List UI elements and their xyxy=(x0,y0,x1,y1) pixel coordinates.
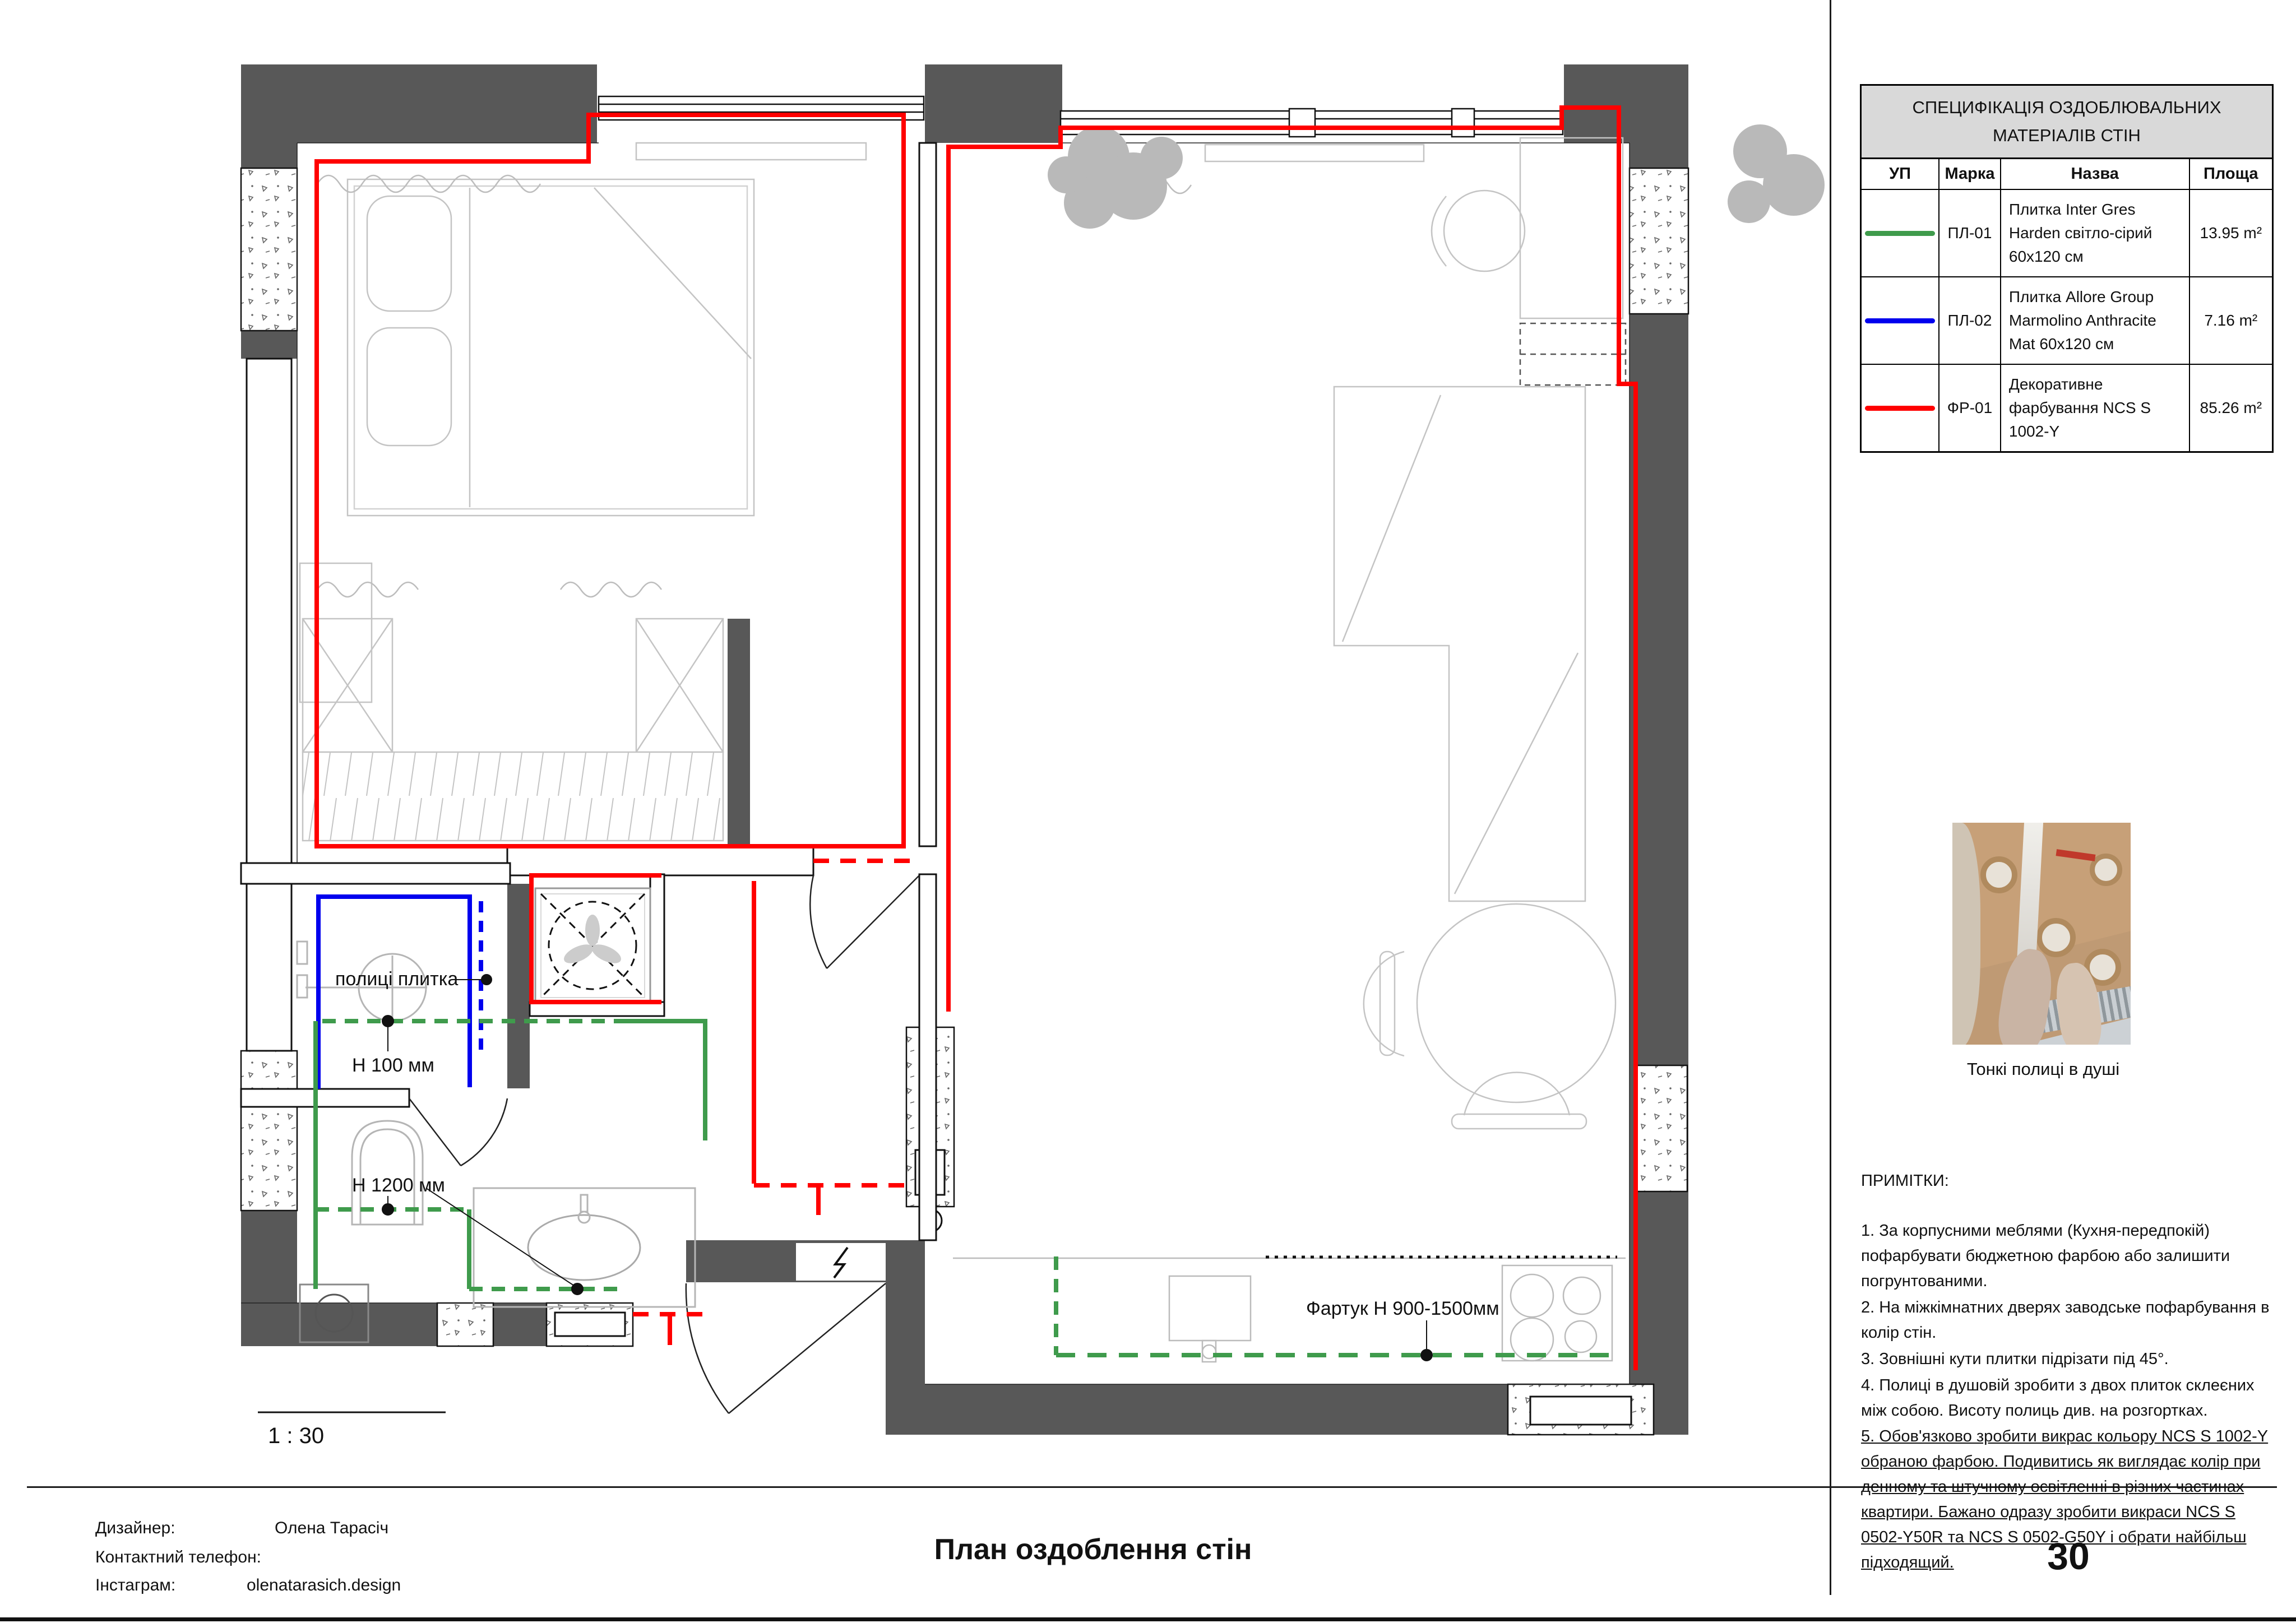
label-apron: Фартук Н 900-1500мм xyxy=(1306,1298,1499,1320)
shower-tray xyxy=(535,888,650,1003)
name-cell: Декоративне фарбування NCS S 1002-Y xyxy=(2001,365,2190,451)
bedroom-furniture xyxy=(300,143,866,841)
col-mark: Марка xyxy=(1939,159,2001,189)
panel-divider xyxy=(1830,0,1831,1595)
area-cell: 13.95 m² xyxy=(2190,190,2272,276)
line-swatch-red xyxy=(1865,406,1935,411)
designer-value: Олена Тарасіч xyxy=(275,1519,388,1538)
spec-table-title: СПЕЦИФІКАЦІЯ ОЗДОБЛЮВАЛЬНИХ МАТЕРІАЛІВ С… xyxy=(1862,86,2272,159)
col-up: УП xyxy=(1862,159,1939,189)
table-row: ПЛ-02 Плитка Allore Group Marmolino Anth… xyxy=(1862,277,2272,365)
mark-cell: ФР-01 xyxy=(1939,365,2001,451)
col-area: Площа xyxy=(2190,159,2272,189)
line-swatch-blue xyxy=(1865,318,1935,323)
scale-label: 1 : 30 xyxy=(268,1423,324,1449)
partitions xyxy=(241,143,936,1240)
phone-label: Контактний телефон: xyxy=(95,1548,261,1567)
note-item: 4. Полиці в душовій зробити з двох плито… xyxy=(1861,1373,2277,1423)
mark-cell: ПЛ-02 xyxy=(1939,277,2001,364)
page-number: 30 xyxy=(1996,1534,2141,1578)
instagram-value: olenatarasich.design xyxy=(247,1576,401,1595)
table-row: ПЛ-01 Плитка Inter Gres Harden світло-сі… xyxy=(1862,190,2272,277)
line-swatch-green xyxy=(1865,231,1935,236)
walls xyxy=(241,64,1688,1435)
floor-plan xyxy=(0,0,1831,1502)
name-cell: Плитка Allore Group Marmolino Anthracite… xyxy=(2001,277,2190,364)
table-row: ФР-01 Декоративне фарбування NCS S 1002-… xyxy=(1862,365,2272,451)
note-item: 1. За корпусними меблями (Кухня-передпок… xyxy=(1861,1218,2277,1294)
legend-swatch xyxy=(1862,277,1939,364)
note-item: 3. Зовнішні кути плитки підрізати під 45… xyxy=(1861,1347,2277,1372)
pier-boxes xyxy=(555,1150,1631,1425)
notes-heading: ПРИМІТКИ: xyxy=(1861,1168,2277,1194)
label-shelves-tile: полиці плитка xyxy=(335,968,458,990)
legend-swatch xyxy=(1862,190,1939,276)
instagram-label: Інстаграм: xyxy=(95,1576,175,1595)
electrical-panel-icon xyxy=(796,1243,886,1281)
reference-photo xyxy=(1952,823,2131,1045)
sheet-title: План оздоблення стін xyxy=(813,1533,1373,1566)
notes-block: ПРИМІТКИ: 1. За корпусними меблями (Кухн… xyxy=(1861,1168,2277,1576)
photo-caption: Тонкі полиці в душі xyxy=(1906,1059,2181,1079)
spec-table: СПЕЦИФІКАЦІЯ ОЗДОБЛЮВАЛЬНИХ МАТЕРІАЛІВ С… xyxy=(1860,84,2274,453)
area-cell: 7.16 m² xyxy=(2190,277,2272,364)
mark-cell: ПЛ-01 xyxy=(1939,190,2001,276)
label-h100: Н 100 мм xyxy=(352,1055,434,1077)
name-cell: Плитка Inter Gres Harden світло-сірий 60… xyxy=(2001,190,2190,276)
designer-label: Дизайнер: xyxy=(95,1519,175,1538)
drawing-sheet: полиці плитка Н 100 мм Н 1200 мм Фартук … xyxy=(0,0,2296,1623)
area-cell: 85.26 m² xyxy=(2190,365,2272,451)
label-h1200: Н 1200 мм xyxy=(352,1175,445,1197)
living-furniture xyxy=(1057,138,1626,1129)
sheet-bottom-border xyxy=(0,1617,2296,1621)
legend-swatch xyxy=(1862,365,1939,451)
note-item: 2. На міжкімнатних дверях заводське пофа… xyxy=(1861,1295,2277,1346)
paint-line-fr01 xyxy=(317,108,1636,1370)
col-name: Назва xyxy=(2001,159,2190,189)
spec-table-header: УП Марка Назва Площа xyxy=(1862,159,2272,190)
